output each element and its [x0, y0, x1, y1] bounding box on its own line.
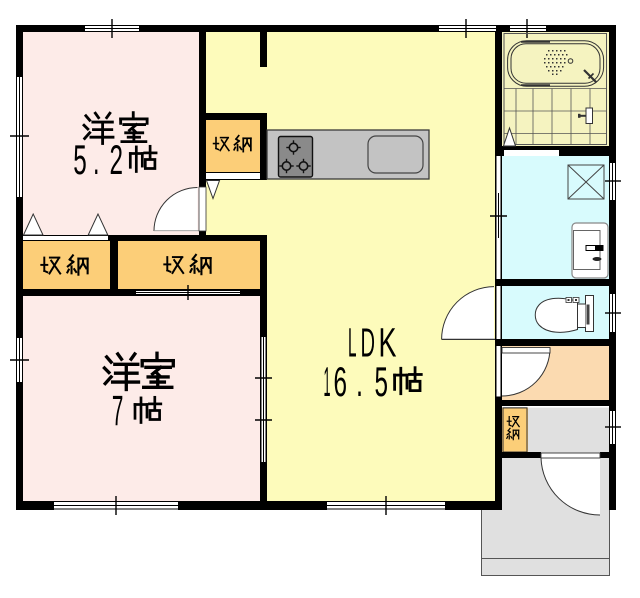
svg-text:.: . [356, 358, 363, 405]
svg-text:6: 6 [334, 358, 348, 405]
svg-text:5: 5 [375, 358, 389, 405]
svg-text:7: 7 [112, 388, 124, 435]
svg-text:.: . [93, 136, 100, 183]
svg-text:1: 1 [324, 358, 331, 405]
svg-text:5: 5 [73, 136, 87, 183]
svg-text:2: 2 [110, 136, 124, 183]
